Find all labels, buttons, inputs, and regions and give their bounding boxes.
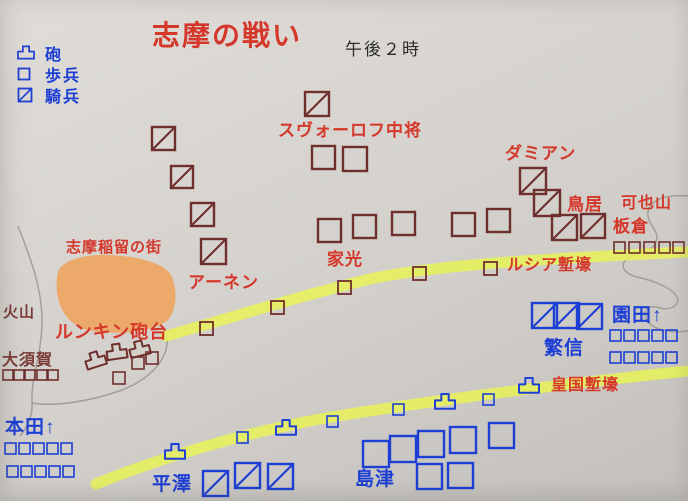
red-cavalry-unit xyxy=(201,239,226,264)
label-runkin: ルンキン砲台 xyxy=(55,321,168,342)
red-infantry-small-unit xyxy=(132,357,144,369)
label-osuga: 大須賀 xyxy=(2,350,53,369)
red-infantry-unit xyxy=(392,212,415,235)
blue-infantry-unit xyxy=(417,464,442,489)
red-cavalry-unit xyxy=(171,166,193,188)
blue-infantry-small-unit xyxy=(638,330,649,341)
label-lucia-trench: ルシア塹壕 xyxy=(507,255,592,274)
red-infantry-unit xyxy=(452,213,475,236)
cavalry-symbol-icon xyxy=(17,87,39,103)
red-infantry-unit xyxy=(487,209,510,232)
blue-infantry-small-unit xyxy=(7,466,18,477)
label-arnen: アーネン xyxy=(188,273,259,292)
red-infantry-small-unit xyxy=(113,372,125,384)
red-cavalry-unit xyxy=(305,92,329,116)
red-infantry-small-unit xyxy=(3,370,13,380)
label-kayasan: 可也山 xyxy=(621,193,672,212)
red-artillery-unit xyxy=(106,343,128,360)
red-infantry-unit xyxy=(318,219,341,242)
red-cavalry-unit xyxy=(191,203,214,226)
legend-label: 騎兵 xyxy=(45,83,81,107)
red-infantry-unit xyxy=(343,147,367,171)
red-cavalry-unit xyxy=(552,215,577,240)
blue-infantry-small-unit xyxy=(63,466,74,477)
battle-time: 午後２時 xyxy=(345,35,421,60)
blue-infantry-small-unit xyxy=(610,330,621,341)
blue-infantry-small-unit xyxy=(49,466,60,477)
blue-cavalry-unit xyxy=(235,463,260,488)
label-shimazu: 島津 xyxy=(355,467,395,490)
blue-infantry-small-unit xyxy=(666,352,677,363)
label-hirasawa: 平澤 xyxy=(152,473,192,495)
blue-infantry-unit xyxy=(448,463,473,488)
red-infantry-unit xyxy=(312,146,335,169)
red-infantry-unit xyxy=(353,215,376,238)
blue-infantry-small-unit xyxy=(624,352,635,363)
blue-infantry-small-unit xyxy=(21,466,32,477)
blue-infantry-small-unit xyxy=(35,466,46,477)
legend-item-cavalry: 騎兵 xyxy=(17,84,81,105)
legend-item-infantry: 歩兵 xyxy=(17,63,81,84)
blue-cavalry-unit xyxy=(577,304,602,329)
blue-infantry-small-unit xyxy=(19,443,30,454)
label-shigenobu: 繁信 xyxy=(544,336,584,359)
label-kokoku-trench: 皇国塹壕 xyxy=(551,375,619,394)
blue-infantry-small-unit xyxy=(652,330,663,341)
blue-infantry-small-unit xyxy=(610,352,621,363)
lucia-trench-line xyxy=(166,252,688,336)
red-cavalry-unit xyxy=(152,127,175,150)
legend-item-artillery: 砲 xyxy=(17,42,81,63)
blue-infantry-small-unit xyxy=(5,443,16,454)
blue-infantry-small-unit xyxy=(47,443,58,454)
map-legend: 砲 歩兵 騎兵 xyxy=(17,42,81,105)
label-suvorov: スヴォーロフ中将 xyxy=(278,120,422,140)
label-honda: 本田↑ xyxy=(5,415,56,438)
blue-infantry-small-unit xyxy=(638,352,649,363)
label-damian: ダミアン xyxy=(505,143,576,163)
map-photo: スヴォーロフ中将ダミアン鳥居可也山板倉家光アーネン志摩稲留の街ルンキン砲台ルシア… xyxy=(0,0,688,501)
artillery-symbol-icon xyxy=(17,45,39,60)
infantry-symbol-icon xyxy=(17,67,39,81)
blue-infantry-small-unit xyxy=(652,352,663,363)
blue-infantry-unit xyxy=(418,431,444,457)
red-infantry-small-unit xyxy=(14,370,24,380)
blue-cavalry-unit xyxy=(268,464,293,489)
label-itakura: 板倉 xyxy=(613,216,649,236)
red-artillery-unit xyxy=(83,349,107,369)
red-infantry-small-unit xyxy=(48,370,58,380)
blue-infantry-unit xyxy=(390,436,416,462)
label-sonoda: 園田↑ xyxy=(612,304,663,326)
battle-map-canvas: スヴォーロフ中将ダミアン鳥居可也山板倉家光アーネン志摩稲留の街ルンキン砲台ルシア… xyxy=(0,0,688,501)
page-title: 志摩の戦い xyxy=(152,14,302,54)
blue-infantry-small-unit xyxy=(33,443,44,454)
red-cavalry-unit xyxy=(581,214,605,238)
blue-cavalry-unit xyxy=(203,471,228,496)
blue-infantry-small-unit xyxy=(61,443,72,454)
blue-infantry-unit xyxy=(489,423,514,448)
label-town: 志摩稲留の街 xyxy=(66,238,162,256)
blue-infantry-unit xyxy=(363,441,389,467)
red-infantry-small-unit xyxy=(37,370,47,380)
blue-infantry-small-unit xyxy=(624,330,635,341)
label-torii: 鳥居 xyxy=(567,194,603,214)
label-kazan: 火山 xyxy=(3,304,35,321)
blue-infantry-unit xyxy=(450,427,476,453)
label-iemitsu: 家光 xyxy=(327,249,363,269)
